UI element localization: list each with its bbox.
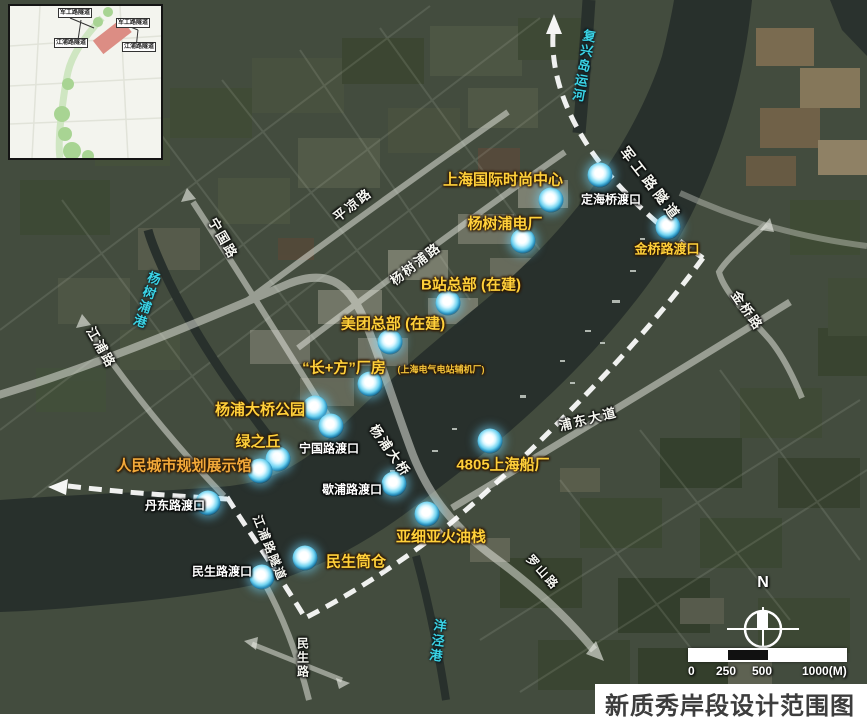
caption-panel: 新质秀岸段设计范围图 [595,684,867,720]
marker-ningguo-ferry [319,414,344,439]
label-ningguo-ferry: 宁国路渡口 [299,440,359,457]
label-changfang-plant-note: (上海电气电站辅机厂) [398,363,485,376]
inset-locator-map: 军工路隧道 军工路隧道 江浦路隧道 江浦路隧道 [8,4,163,160]
label-meituan-hq: 美团总部 (在建) [341,313,445,334]
label-asia-oil-depot: 亚细亚火油栈 [396,526,486,547]
scale-bar: 0 250 500 1000(M) [688,648,858,680]
label-minsheng-ferry: 民生路渡口 [192,563,252,580]
inset-map-art [10,6,161,158]
label-planning-hall: 人民城市规划展示馆 [116,455,251,476]
inset-label-jiangpu-tunnel-2: 江浦路隧道 [122,42,156,52]
label-bridge-park: 杨浦大桥公园 [215,399,305,420]
scale-bar-segments [688,648,847,662]
scale-tick-1000: 1000(M) [802,664,847,678]
label-shipyard-4805: 4805上海船厂 [456,454,549,475]
inset-label-jungong-tunnel-1: 军工路隧道 [58,8,92,18]
map-canvas: 上海国际时尚中心 杨树浦电厂 B站总部 (在建) 美团总部 (在建) “长+方”… [0,0,867,714]
figure: 上海国际时尚中心 杨树浦电厂 B站总部 (在建) 美团总部 (在建) “长+方”… [0,0,867,720]
label-dinghai-ferry: 定海桥渡口 [581,191,641,208]
label-dandong-ferry: 丹东路渡口 [145,497,205,514]
marker-minsheng-silo [293,546,318,571]
compass-north-letter: N [757,574,769,592]
scale-tick-0: 0 [688,664,695,678]
marker-dinghai-ferry [588,163,613,188]
scale-tick-500: 500 [752,664,772,678]
marker-asia-oil-depot [415,502,440,527]
marker-fashion-center [539,188,564,213]
scale-tick-250: 250 [716,664,736,678]
marker-shipyard-4805 [478,429,503,454]
inset-label-jungong-tunnel-2: 军工路隧道 [116,18,150,28]
map-title: 新质秀岸段设计范围图 [605,686,855,720]
label-bilibili-hq: B站总部 (在建) [421,274,521,295]
label-jinqiao-ferry: 金桥路渡口 [634,239,699,258]
label-minsheng-road: 民生路 [295,637,312,679]
label-fashion-center: 上海国际时尚中心 [443,169,563,190]
inset-label-jiangpu-tunnel-1: 江浦路隧道 [54,38,88,48]
label-xiepu-ferry: 歇浦路渡口 [322,481,382,498]
label-power-plant: 杨树浦电厂 [467,213,542,234]
label-changfang-plant: “长+方”厂房 [302,357,386,378]
label-minsheng-silo: 民生筒仓 [326,551,386,572]
label-green-hill: 绿之丘 [235,431,280,452]
